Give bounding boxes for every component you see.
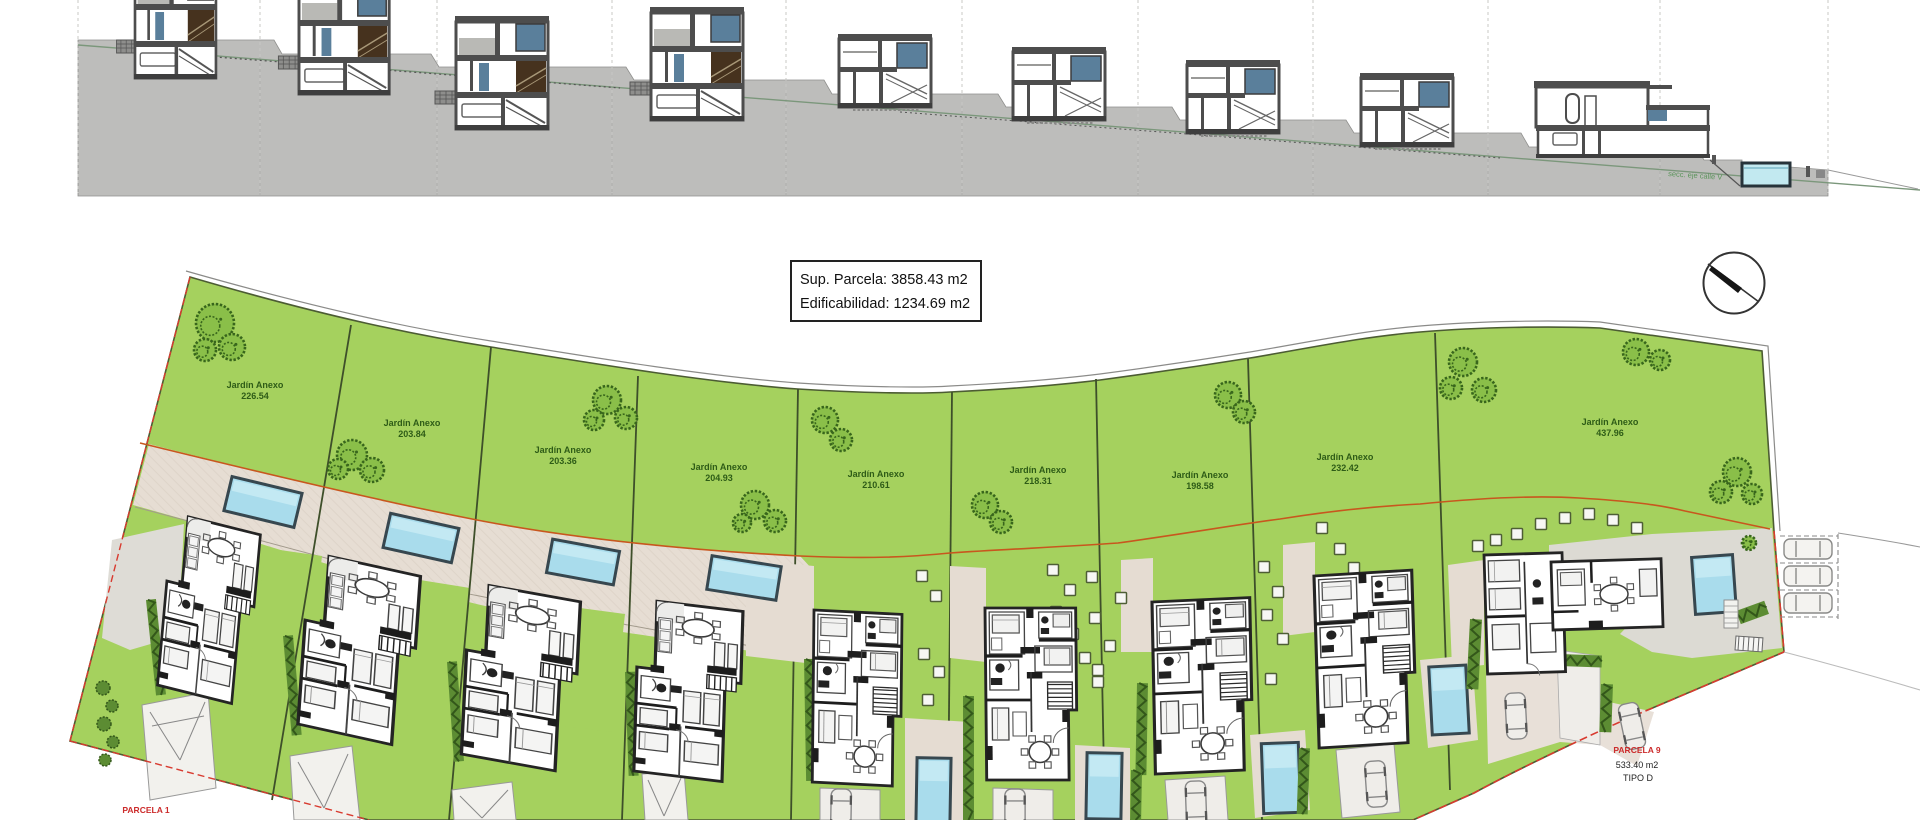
svg-text:TIPO D: TIPO D: [1623, 773, 1654, 783]
svg-text:204.93: 204.93: [705, 473, 733, 483]
svg-text:198.58: 198.58: [1186, 481, 1214, 491]
svg-text:437.96: 437.96: [1596, 428, 1624, 438]
svg-text:203.36: 203.36: [549, 456, 577, 466]
svg-text:Jardín Anexo: Jardín Anexo: [1172, 470, 1229, 480]
svg-text:203.84: 203.84: [398, 429, 426, 439]
svg-text:Jardín Anexo: Jardín Anexo: [848, 469, 905, 479]
svg-text:PARCELA 9: PARCELA 9: [1613, 745, 1661, 755]
svg-text:Sup. Parcela: 3858.43 m2: Sup. Parcela: 3858.43 m2: [800, 272, 968, 288]
svg-text:Jardín Anexo: Jardín Anexo: [1582, 417, 1639, 427]
svg-text:Jardín Anexo: Jardín Anexo: [1317, 452, 1374, 462]
svg-text:210.61: 210.61: [862, 480, 890, 490]
svg-text:Edificabilidad: 1234.69 m2: Edificabilidad: 1234.69 m2: [800, 296, 970, 312]
svg-text:232.42: 232.42: [1331, 463, 1359, 473]
svg-text:Jardín Anexo: Jardín Anexo: [535, 445, 592, 455]
svg-text:Jardín Anexo: Jardín Anexo: [691, 462, 748, 472]
svg-text:Jardín Anexo: Jardín Anexo: [227, 380, 284, 390]
svg-text:218.31: 218.31: [1024, 476, 1052, 486]
svg-text:Jardín Anexo: Jardín Anexo: [1010, 465, 1067, 475]
svg-text:PARCELA 1: PARCELA 1: [122, 805, 170, 815]
svg-text:Jardín Anexo: Jardín Anexo: [384, 418, 441, 428]
svg-text:533.40 m2: 533.40 m2: [1616, 760, 1659, 770]
svg-text:226.54: 226.54: [241, 391, 269, 401]
